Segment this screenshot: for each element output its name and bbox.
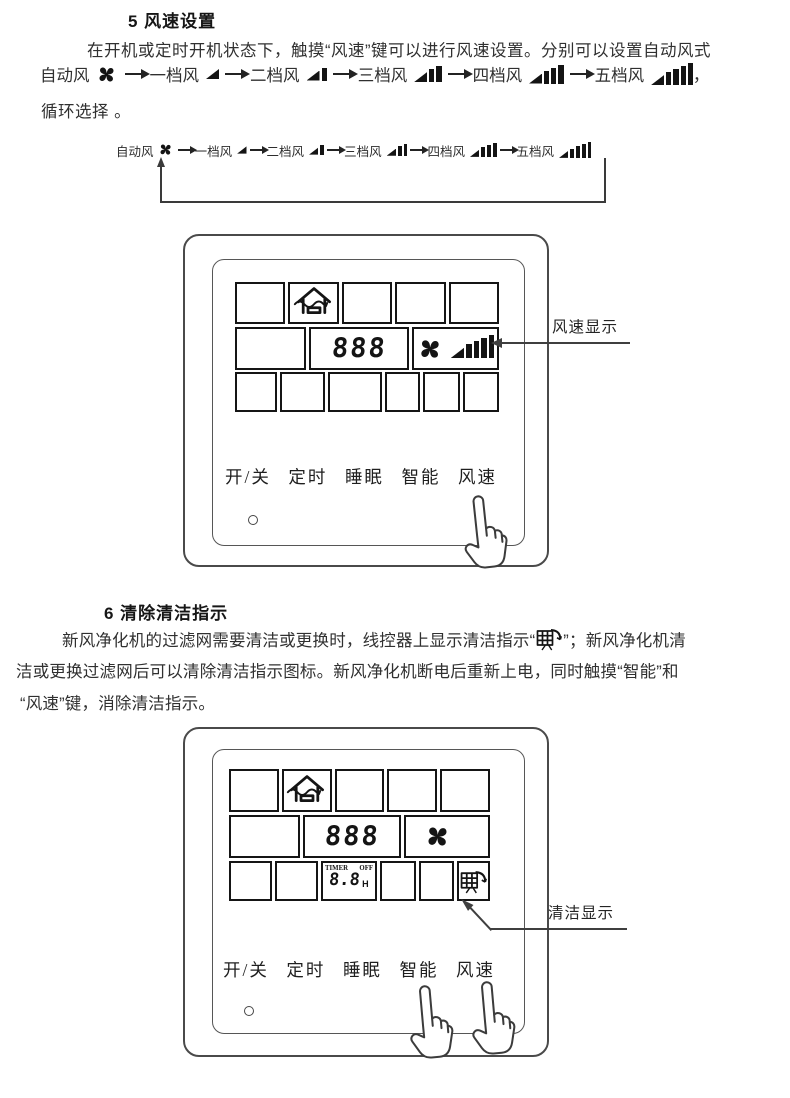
- section6-paragraph-line3: “风速”键，消除清洁指示。: [20, 690, 215, 714]
- arrow-right-icon: [327, 149, 339, 151]
- sleep-button-label: 睡眠: [345, 464, 384, 489]
- lcd-digits: 888: [330, 333, 387, 364]
- lcd-cell-house: [288, 282, 338, 324]
- line1-text-post: ”；新风净化机清: [563, 627, 686, 651]
- lcd-row: [235, 372, 499, 412]
- fan-speed-display-callout: 风速显示: [552, 315, 618, 337]
- clean-filter-icon: [536, 627, 562, 651]
- fan-icon: [96, 64, 117, 85]
- lcd-cell: [235, 327, 306, 370]
- section6-heading: 6 清除清洁指示: [104, 599, 228, 624]
- smart-button-label: 智能: [399, 957, 438, 982]
- fan-speed-bars-icon: [470, 143, 497, 157]
- pilot-led: [244, 1006, 254, 1016]
- cycle-loop-arrowhead-icon: [157, 157, 165, 167]
- lcd-cell: [380, 861, 416, 901]
- lcd-cell: [280, 372, 325, 412]
- section5-speed-sequence-line: 自动风一档风二档风三档风四档风五档风，: [40, 58, 710, 90]
- cycle-loop-line-bottom: [160, 201, 606, 203]
- lcd-cell: [423, 372, 460, 412]
- arrow-right-icon: [178, 149, 190, 151]
- speed-label: 自动风: [116, 141, 154, 160]
- arrow-right-icon: [125, 73, 142, 75]
- lcd-cell: [328, 372, 382, 412]
- power-button-label: 开/关: [225, 464, 271, 489]
- section6-paragraph-line1: 新风净化机的过滤网需要清洁或更换时，线控器上显示清洁指示“”；新风净化机清: [62, 625, 686, 653]
- callout-line: [500, 342, 630, 344]
- timer-button-label: 定时: [288, 464, 327, 489]
- lcd-cell-clean-indicator: [457, 861, 490, 901]
- pointing-hand-icon: [395, 978, 460, 1065]
- timer-unit-label: H: [362, 880, 369, 889]
- lcd-cell: [229, 861, 272, 901]
- speed-label: 三档风: [344, 141, 382, 160]
- lcd-cell: [419, 861, 454, 901]
- lcd-cell-digits: 888: [303, 815, 401, 858]
- fan-icon: [158, 142, 173, 157]
- lcd-cell: [387, 769, 437, 812]
- speed-label: 一档风: [195, 141, 233, 160]
- speed-label: 二档风: [250, 62, 300, 86]
- sleep-button-label: 睡眠: [343, 957, 382, 982]
- lcd-cell: [342, 282, 392, 324]
- lcd-cell: [235, 372, 277, 412]
- lcd-cell: [229, 815, 300, 858]
- arrow-right-icon: [333, 73, 350, 75]
- fan-speed-bars-icon: [448, 335, 494, 363]
- callout-line: [490, 928, 627, 930]
- section5-paragraph-line3: 循环选择 。: [41, 98, 131, 122]
- line1-text-pre: 新风净化机的过滤网需要清洁或更换时，线控器上显示清洁指示“: [62, 627, 535, 651]
- fan-speed-bars-icon: [451, 335, 494, 358]
- panel1-touch-buttons: 开/关 定时 睡眠 智能 风速: [225, 464, 497, 489]
- fan-icon: [424, 823, 451, 850]
- pointing-hand-icon: [457, 974, 522, 1061]
- manual-page: 5 风速设置 在开机或定时开机状态下，触摸“风速”键可以进行风速设置。分别可以设…: [0, 0, 790, 1098]
- sequence-comma: ，: [693, 62, 710, 86]
- lcd-cell: [463, 372, 499, 412]
- fan-icon: [417, 336, 443, 362]
- lcd-row: [229, 769, 490, 812]
- cycle-loop-line-left: [160, 166, 162, 203]
- timer-button-label: 定时: [286, 957, 325, 982]
- speed-label: 五档风: [595, 62, 645, 86]
- arrow-right-icon: [410, 149, 422, 151]
- fan-speed-bars-icon: [414, 66, 441, 82]
- fan-speed-bars-icon: [307, 68, 327, 81]
- speed-label: 二档风: [267, 141, 305, 160]
- lcd-row: 888: [229, 815, 490, 858]
- smart-button-label: 智能: [401, 464, 440, 489]
- cycle-loop-line-right: [604, 158, 606, 203]
- arrow-right-icon: [225, 73, 242, 75]
- arrow-right-icon: [570, 73, 587, 75]
- fan-speed-sequence: 自动风一档风二档风三档风四档风五档风: [40, 62, 693, 86]
- lcd-cell-fan: [404, 815, 490, 858]
- timer-off-label: OFF: [359, 865, 373, 872]
- lcd-cell: [229, 769, 279, 812]
- speed-cycle-diagram: 自动风一档风二档风三档风四档风五档风: [116, 137, 591, 163]
- house-ventilation-icon: [286, 773, 328, 809]
- fan-speed-cycle-sequence: 自动风一档风二档风三档风四档风五档风: [116, 141, 591, 160]
- speed-label: 四档风: [473, 62, 523, 86]
- lcd-row: 888: [235, 327, 499, 370]
- fan-speed-bars-icon: [237, 146, 246, 153]
- panel2-lcd-display: 888 TIMER OFF 8.8 H: [229, 769, 490, 901]
- speed-label: 一档风: [150, 62, 200, 86]
- lcd-cell: [385, 372, 420, 412]
- clean-filter-icon: [460, 869, 487, 894]
- pilot-led: [248, 515, 258, 525]
- arrow-right-icon: [250, 149, 262, 151]
- lcd-cell-timer: TIMER OFF 8.8 H: [321, 861, 377, 901]
- speed-label: 四档风: [427, 141, 465, 160]
- fan-speed-button-label: 风速: [458, 464, 497, 489]
- lcd-cell-fan-speed: [412, 327, 499, 370]
- fan-speed-bars-icon: [309, 145, 324, 154]
- clean-display-callout: 清洁显示: [548, 901, 614, 923]
- house-ventilation-icon: [293, 285, 335, 321]
- lcd-cell-house: [282, 769, 332, 812]
- lcd-cell: [275, 861, 318, 901]
- lcd-row: TIMER OFF 8.8 H: [229, 861, 490, 901]
- section6-paragraph-line2: 洁或更换过滤网后可以清除清洁指示图标。新风净化机断电后重新上电，同时触摸“智能”…: [16, 658, 679, 682]
- lcd-cell: [395, 282, 445, 324]
- fan-speed-bars-icon: [651, 63, 693, 85]
- lcd-cell: [235, 282, 285, 324]
- lcd-cell: [440, 769, 490, 812]
- panel1-lcd-display: 888: [235, 282, 499, 412]
- speed-label: 五档风: [517, 141, 555, 160]
- arrow-right-icon: [500, 149, 512, 151]
- fan-speed-bars-icon: [529, 65, 564, 84]
- panel2-touch-buttons: 开/关 定时 睡眠 智能 风速: [223, 957, 495, 982]
- speed-label: 三档风: [358, 62, 408, 86]
- lcd-cell: [335, 769, 385, 812]
- lcd-cell-digits: 888: [309, 327, 409, 370]
- speed-label: 自动风: [40, 62, 90, 86]
- section5-heading: 5 风速设置: [128, 7, 216, 32]
- lcd-digits: 888: [323, 821, 380, 852]
- pointing-hand-icon: [448, 487, 514, 575]
- fan-speed-bars-icon: [559, 142, 591, 158]
- arrow-right-icon: [448, 73, 465, 75]
- lcd-row: [235, 282, 499, 324]
- callout-arrow-icon: [491, 338, 502, 348]
- fan-speed-bars-icon: [206, 69, 219, 79]
- lcd-cell: [449, 282, 499, 324]
- power-button-label: 开/关: [223, 957, 269, 982]
- fan-speed-bars-icon: [387, 144, 408, 156]
- timer-digits: 8.8: [329, 872, 361, 889]
